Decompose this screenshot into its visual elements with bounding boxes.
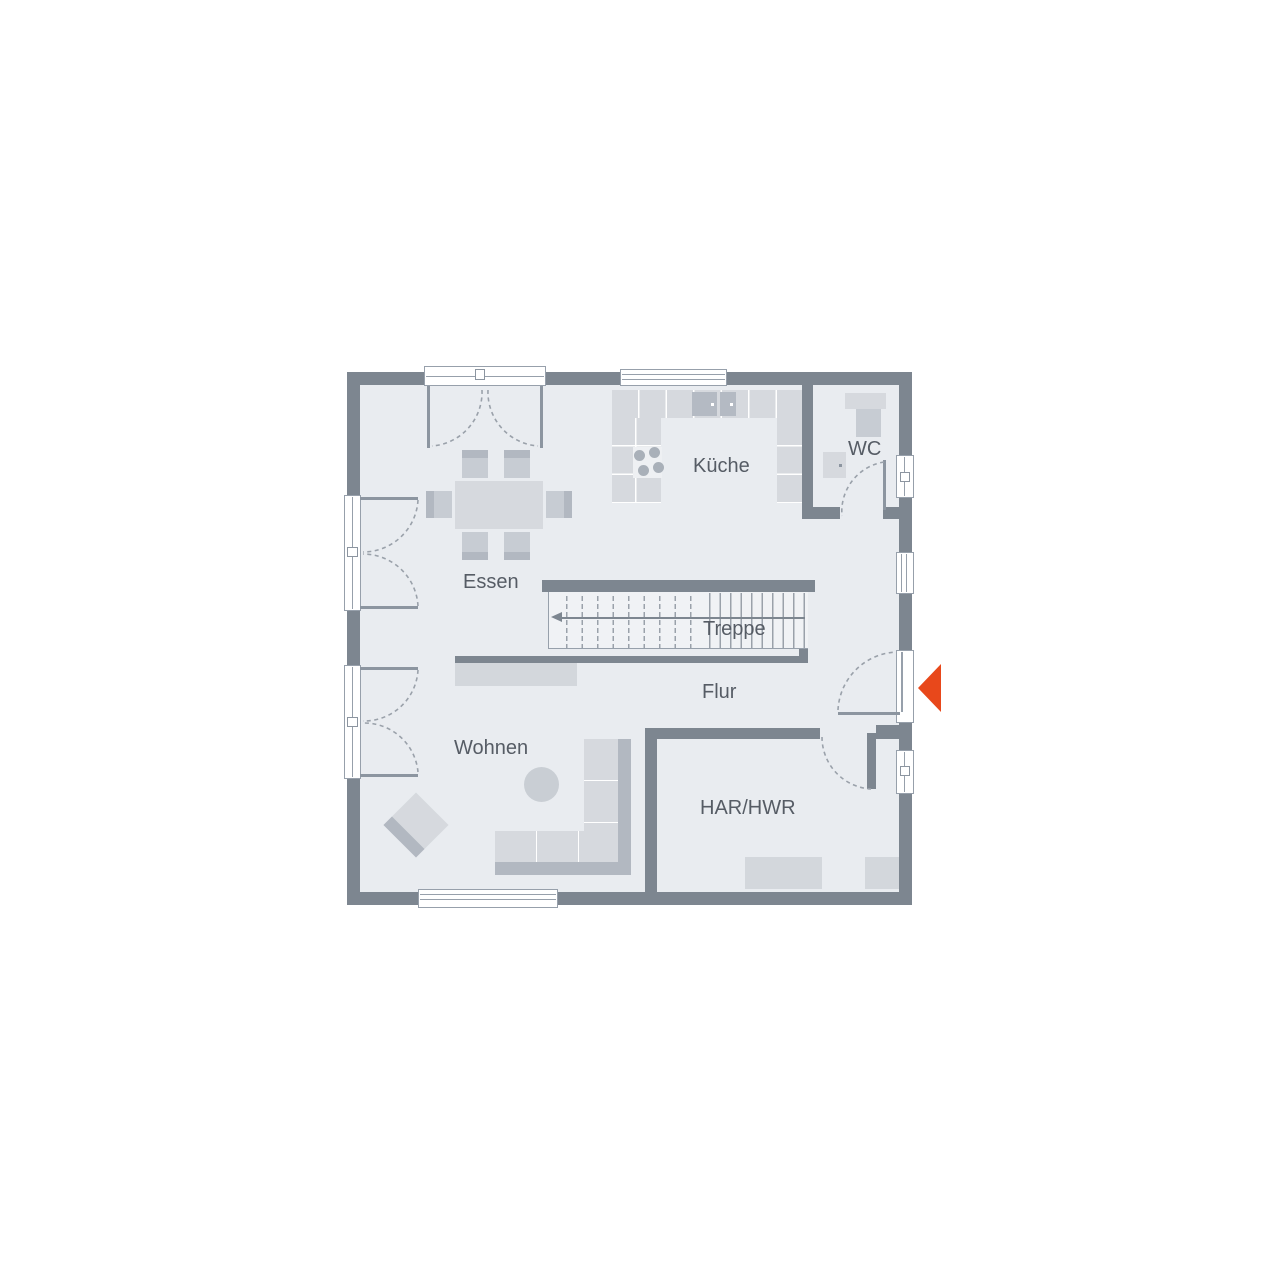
sofa-seats-horizontal (495, 831, 618, 862)
utility-appliance (745, 857, 822, 889)
cooktop-burner-icon (634, 450, 645, 461)
wall-wc-bottom-left (802, 507, 840, 519)
kitchen-oven-dot (730, 403, 733, 406)
toilet-icon (856, 409, 881, 437)
chair-backrest (504, 450, 530, 458)
dining-chair (426, 491, 452, 518)
dining-chair (462, 532, 488, 560)
stair-window-frame (896, 552, 914, 594)
outer-wall-right (899, 372, 912, 905)
chair-backrest (462, 552, 488, 560)
door-swing-arc (361, 665, 421, 777)
cooktop-burner-icon (649, 447, 660, 458)
room-label-hall: Flur (702, 681, 736, 703)
room-label-living: Wohnen (454, 737, 528, 759)
stair-window-glass-line1 (901, 554, 902, 592)
sideboard (455, 663, 577, 686)
chair-backrest (426, 491, 434, 518)
chair-backrest (564, 491, 572, 518)
kitchen-sink-dot (711, 403, 714, 406)
coffee-table-icon (524, 767, 559, 802)
washbasin-icon (823, 452, 846, 478)
dining-door-glass-line (426, 376, 544, 377)
kitchen-oven-unit (720, 392, 736, 416)
utility-appliance (865, 857, 899, 889)
stair-treads-dashed (552, 593, 700, 648)
kitchen-window-frame (620, 369, 727, 386)
wall-stairs-right-connector (799, 648, 808, 663)
cooktop-burner-icon (653, 462, 664, 473)
entrance-door-line (901, 652, 903, 712)
outer-wall-left (347, 372, 360, 905)
wall-utility-left (645, 728, 657, 892)
sofa-backrest-horizontal (495, 862, 631, 875)
chair-backrest (504, 552, 530, 560)
kitchen-window-glass-line2 (622, 379, 725, 380)
stair-window-glass-line2 (906, 554, 907, 592)
dining-chair (462, 450, 488, 478)
window-handle-icon (347, 547, 358, 557)
sofa-backrest-vertical (618, 739, 631, 875)
kitchen-counter-right (777, 418, 802, 503)
window-handle-icon (900, 766, 910, 776)
door-swing-arc (818, 734, 876, 792)
door-swing-arc (424, 386, 546, 450)
chair-backrest (462, 450, 488, 458)
room-label-utility: HAR/HWR (700, 797, 796, 819)
window-handle-icon (900, 472, 910, 482)
cooktop-burner-icon (638, 465, 649, 476)
kitchen-window-glass-line1 (622, 374, 725, 375)
wc-cistern (845, 393, 886, 409)
room-label-stairs: Treppe (703, 618, 766, 640)
door-swing-arc (836, 650, 900, 714)
dining-chair (504, 532, 530, 560)
window-handle-icon (347, 717, 358, 727)
stair-direction-arrow-icon (551, 612, 562, 622)
washbasin-drain-dot (839, 464, 842, 467)
room-label-kitchen: Küche (693, 455, 750, 477)
living-window-glass-line1 (420, 894, 556, 895)
wall-stairs-top (542, 580, 815, 592)
wall-utility-top-nib (876, 725, 899, 739)
window-handle-icon (475, 369, 485, 380)
dining-chair (504, 450, 530, 478)
stair-direction-line (560, 617, 805, 619)
room-label-wc: WC (848, 438, 881, 460)
floor-plan-canvas: Küche WC Essen Treppe Flur Wohnen HAR/HW… (0, 0, 1280, 1280)
room-label-dining: Essen (463, 571, 519, 593)
dining-table (455, 481, 543, 529)
door-swing-arc (361, 495, 421, 611)
wall-utility-top (645, 728, 820, 739)
wall-kitchen-wc (802, 385, 813, 510)
wall-under-stairs (455, 656, 808, 663)
entrance-arrow-icon (918, 664, 941, 712)
living-window-glass-line2 (420, 899, 556, 900)
dining-chair (546, 491, 572, 518)
